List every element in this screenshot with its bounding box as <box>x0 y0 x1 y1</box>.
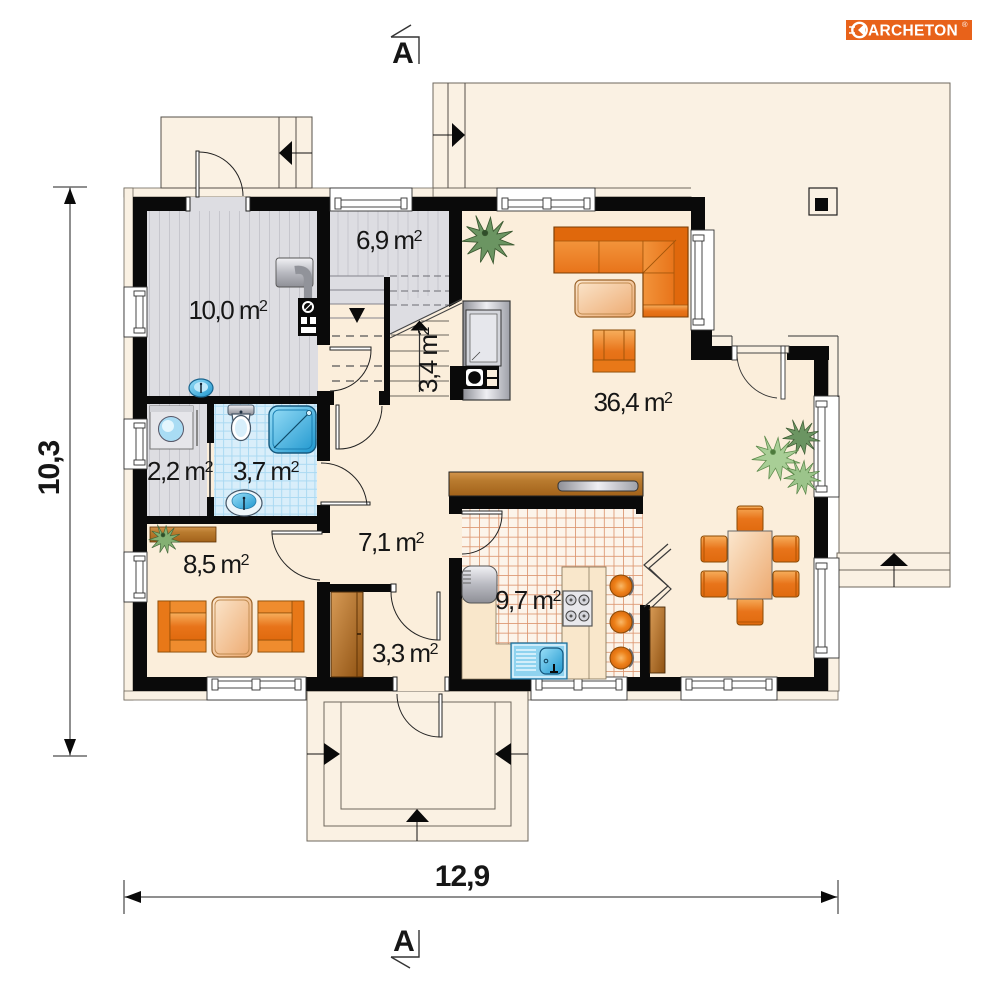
svg-text:3,4 m2: 3,4 m2 <box>413 326 443 393</box>
svg-text:7,1 m2: 7,1 m2 <box>358 527 425 557</box>
svg-text:3,3 m2: 3,3 m2 <box>372 638 439 668</box>
svg-text:3,7 m2: 3,7 m2 <box>233 456 300 486</box>
svg-text:10,3: 10,3 <box>33 440 66 495</box>
svg-text:A: A <box>392 37 414 70</box>
svg-text:36,4 m2: 36,4 m2 <box>594 387 674 417</box>
svg-text:10,0 m2: 10,0 m2 <box>189 295 269 325</box>
svg-text:A: A <box>393 925 415 958</box>
svg-text:9,7 m2: 9,7 m2 <box>495 585 562 615</box>
svg-text:®: ® <box>962 20 968 29</box>
svg-text:8,5 m2: 8,5 m2 <box>183 549 250 579</box>
svg-text:2,2 m2: 2,2 m2 <box>147 456 214 486</box>
svg-text:12,9: 12,9 <box>435 860 490 893</box>
svg-text:6,9 m2: 6,9 m2 <box>356 225 423 255</box>
svg-text:ARCHETON: ARCHETON <box>868 23 958 40</box>
